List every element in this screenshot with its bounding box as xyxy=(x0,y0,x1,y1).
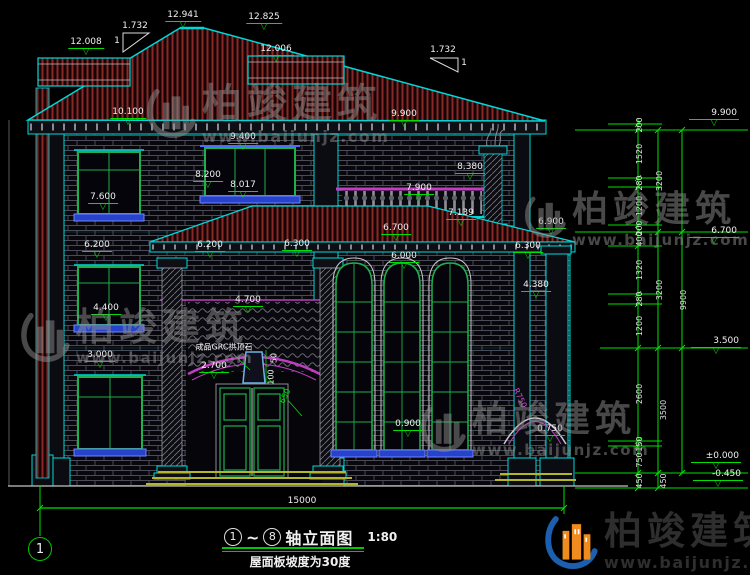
title-underline xyxy=(222,547,364,549)
level-value: 0.900 xyxy=(395,419,421,429)
vertical-dim: 450 xyxy=(660,473,668,488)
roof-slope-note: 屋面板坡度为30度 xyxy=(250,553,351,570)
level-marker: -0.450 xyxy=(693,470,743,481)
level-marker: 2.700 xyxy=(199,362,229,373)
annotation: 1.732 xyxy=(430,45,456,55)
level-marker: 8.017 xyxy=(228,181,258,192)
level-marker: 9.900 xyxy=(389,110,419,121)
annotation: 1.732 xyxy=(122,21,148,31)
level-marker: 3.000 xyxy=(85,351,115,362)
level-marker: 10.100 xyxy=(110,108,146,119)
level-value: 7.600 xyxy=(90,192,116,202)
axis-bubble-1: 1 xyxy=(28,537,52,561)
level-marker: 0.750 xyxy=(535,425,565,436)
horizontal-dim: 15000 xyxy=(288,496,317,506)
level-value: 12.941 xyxy=(167,10,199,20)
annotation: 50 xyxy=(270,353,279,363)
level-marker: 6.700 xyxy=(689,227,739,238)
level-marker: 6.700 xyxy=(381,224,411,235)
vertical-dim: 450 xyxy=(636,473,644,488)
level-value: 10.100 xyxy=(112,107,144,117)
axis-end-bubble: 8 xyxy=(263,528,281,546)
level-marker: ±0.000 xyxy=(691,452,741,463)
vertical-dim: 3200 xyxy=(656,280,664,300)
level-value: 6.700 xyxy=(711,226,737,236)
level-value: 0.750 xyxy=(537,424,563,434)
vertical-dim: 150 xyxy=(636,436,644,451)
annotation: 100 xyxy=(267,369,276,384)
level-value: 7.139 xyxy=(448,208,474,218)
level-value: 12.006 xyxy=(260,44,292,54)
level-value: 12.825 xyxy=(248,12,280,22)
axis-number: 1 xyxy=(36,542,44,557)
level-value: 9.900 xyxy=(391,109,417,119)
level-marker: 7.139 xyxy=(446,209,476,220)
level-marker: 7.600 xyxy=(88,193,118,204)
level-marker: 12.008 xyxy=(68,38,104,49)
vertical-dim: 1200 xyxy=(636,316,644,336)
level-value: 8.017 xyxy=(230,180,256,190)
level-value: 9.400 xyxy=(230,132,256,142)
vertical-dim: 1520 xyxy=(636,144,644,164)
vertical-dim: 400 xyxy=(636,231,644,246)
level-marker: 6.000 xyxy=(389,252,419,263)
level-value: 4.400 xyxy=(93,303,119,313)
level-value: 3.000 xyxy=(87,350,113,360)
corner-downpipe-strip xyxy=(36,88,49,478)
vertical-dim: 200 xyxy=(636,117,644,132)
drawing-title: 1 ~ 8 轴立面图 1:80 xyxy=(224,525,397,549)
level-marker: 7.900 xyxy=(404,184,434,195)
level-value: 6.200 xyxy=(197,240,223,250)
level-marker: 6.300 xyxy=(513,242,543,253)
vertical-dim: 3500 xyxy=(660,400,668,420)
level-marker: 6.300 xyxy=(282,240,312,251)
level-marker: 4.700 xyxy=(233,296,263,307)
house-elevation-drawing xyxy=(0,0,750,575)
vertical-dim: 9900 xyxy=(680,290,688,310)
level-value: 9.900 xyxy=(711,108,737,118)
level-marker: 9.900 xyxy=(689,109,739,120)
level-value: 4.380 xyxy=(523,280,549,290)
vertical-dim: 280 xyxy=(636,291,644,306)
level-marker: 3.500 xyxy=(691,337,741,348)
drawing-scale: 1:80 xyxy=(367,530,397,544)
vertical-dim: 3200 xyxy=(656,171,664,191)
level-value: ±0.000 xyxy=(706,451,739,461)
level-marker: 6.200 xyxy=(82,241,112,252)
level-value: 12.008 xyxy=(70,37,102,47)
axis-start-bubble: 1 xyxy=(224,528,242,546)
annotation: 1 xyxy=(461,58,467,68)
main-cornice xyxy=(28,120,546,134)
level-marker: 9.400 xyxy=(228,133,258,144)
entry-door xyxy=(216,384,288,478)
annotation: 1 xyxy=(114,36,120,46)
level-marker: 6.200 xyxy=(195,241,225,252)
level-marker: 12.006 xyxy=(258,45,294,56)
level-value: 6.700 xyxy=(383,223,409,233)
level-marker: 8.200 xyxy=(193,171,223,182)
axis-range-tilde: ~ xyxy=(246,528,259,547)
level-value: 8.200 xyxy=(195,170,221,180)
window-1f-left xyxy=(74,375,146,456)
level-value: 6.300 xyxy=(284,239,310,249)
level-marker: 12.941 xyxy=(165,11,201,22)
level-value: 6.000 xyxy=(391,251,417,261)
vertical-dim: 1320 xyxy=(636,260,644,280)
cad-elevation-canvas: 12.00812.94112.82512.00610.1009.4009.900… xyxy=(0,0,750,575)
annotation: 成品GRC拱顶石 xyxy=(196,342,253,353)
vertical-dim: 750 xyxy=(636,452,644,467)
level-value: 3.500 xyxy=(713,336,739,346)
level-marker: 4.400 xyxy=(91,304,121,315)
level-marker: 6.900 xyxy=(536,218,566,229)
level-value: 2.700 xyxy=(201,361,227,371)
level-value: 6.200 xyxy=(84,240,110,250)
level-marker: 12.825 xyxy=(246,13,282,24)
level-value: 7.900 xyxy=(406,183,432,193)
level-value: 6.900 xyxy=(538,217,564,227)
vertical-dim: 1200 xyxy=(636,196,644,216)
level-value: -0.450 xyxy=(712,469,741,479)
title-underline-2 xyxy=(222,551,364,552)
level-marker: 0.900 xyxy=(393,420,423,431)
title-text: 轴立面图 xyxy=(285,525,353,549)
window-3f-left xyxy=(74,150,144,221)
grc-keystone xyxy=(243,352,265,383)
level-value: 8.380 xyxy=(457,162,483,172)
level-marker: 8.380 xyxy=(455,163,485,174)
vertical-dim: 2600 xyxy=(636,384,644,404)
vertical-dim: 280 xyxy=(636,175,644,190)
level-marker: 4.380 xyxy=(521,281,551,292)
level-value: 6.300 xyxy=(515,241,541,251)
level-value: 4.700 xyxy=(235,295,261,305)
